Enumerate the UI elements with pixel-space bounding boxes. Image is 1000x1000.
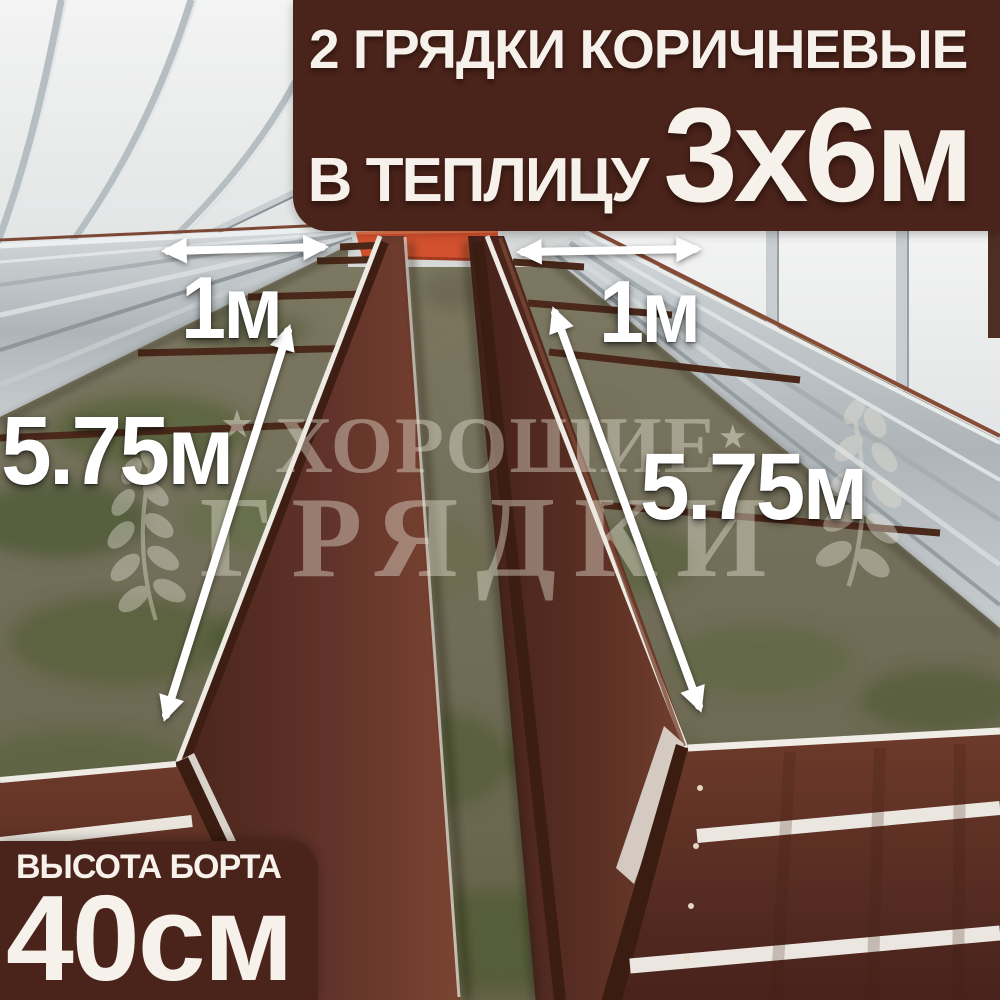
dimension-label-left-width: 1м <box>181 264 280 352</box>
dimension-label-right-length: 5.75м <box>640 440 866 535</box>
arrow-left-bed-width <box>168 247 322 251</box>
banner-size-value: 3х6м <box>663 89 970 223</box>
banner-title: 2 ГРЯДКИ КОРИЧНЕВЫЕ <box>309 22 967 77</box>
banner-subtitle-text: В ТЕПЛИЦУ <box>308 150 648 212</box>
arrow-right-bed-width <box>523 249 695 252</box>
dimension-label-right-width: 1м <box>599 268 698 356</box>
product-image: ХОРОШИЕ ГРЯДКИ ★ ★ 1м 1м 5.75м 5.75м 2 Г… <box>0 0 1000 1000</box>
dimension-label-left-length: 5.75м <box>1 402 232 499</box>
height-badge-value: 40см <box>6 877 292 999</box>
height-badge: ВЫСОТА БОРТА 40см <box>0 841 318 1000</box>
title-banner: 2 ГРЯДКИ КОРИЧНЕВЫЕ В ТЕПЛИЦУ 3х6м <box>293 0 1000 231</box>
banner-subtitle: В ТЕПЛИЦУ 3х6м <box>308 89 970 223</box>
arrow-left-bed-length <box>166 331 288 715</box>
